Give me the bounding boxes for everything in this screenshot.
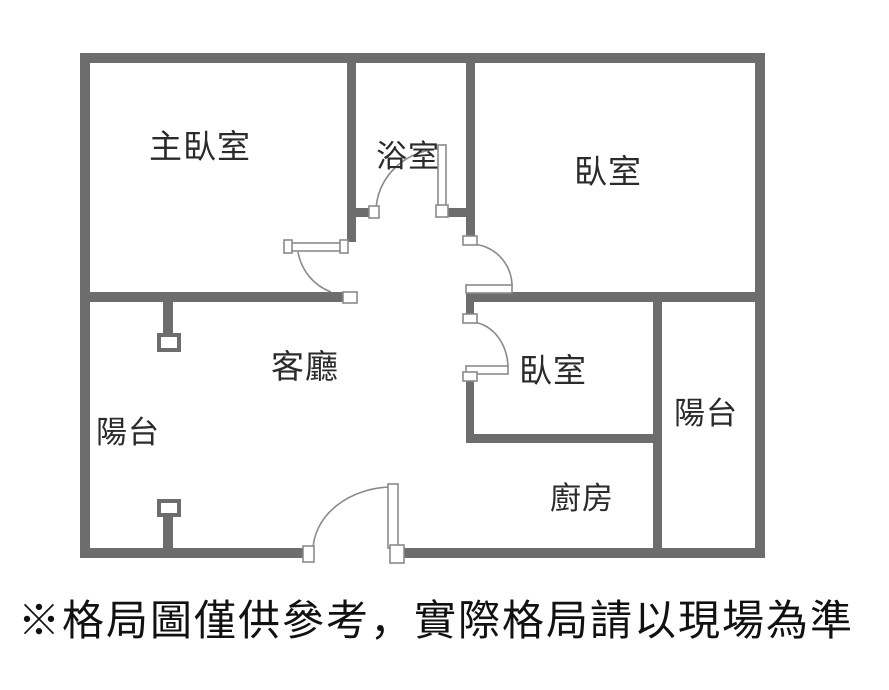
door-jamb [436,205,448,217]
door-jamb [284,240,292,253]
disclaimer-caption: ※格局圖僅供參考，實際格局請以現場為準 [18,598,854,645]
room-label-bedroom-middle: 臥室 [519,353,587,390]
floor-plan-drawing: 主臥室 浴室 臥室 客廳 陽台 臥室 陽台 廚房 ※格局圖僅供參考，實際格局請以… [0,0,889,690]
door-jamb [463,372,477,381]
post-cap-bottom [159,501,179,515]
door-jamb [463,236,477,245]
door-jamb [340,240,348,253]
wall-outer-left [80,53,90,558]
door-leaf [287,243,347,251]
door-jamb [463,314,477,323]
room-labels: 主臥室 浴室 臥室 客廳 陽台 臥室 陽台 廚房 [96,129,738,516]
wall-end-caps [159,335,179,515]
floor-plan-page: 主臥室 浴室 臥室 客廳 陽台 臥室 陽台 廚房 ※格局圖僅供參考，實際格局請以… [0,0,889,690]
walls [80,53,765,558]
room-label-bedroom-top-right: 臥室 [574,154,642,191]
wall-outer-top [80,53,765,63]
post-cap-top [159,335,179,350]
room-label-balcony-right: 陽台 [674,396,738,431]
door-arc [470,322,508,368]
wall-bedroom-mid-bottom [466,434,658,443]
wall-balcony-left-stub-top [163,302,173,334]
door-leaf [388,484,398,548]
wall-outer-bottom-left [80,548,305,558]
wall-balcony-right [653,302,662,548]
wall-outer-right [755,53,765,558]
room-label-kitchen: 廚房 [550,481,614,516]
bedroom-top-door [463,236,512,293]
room-label-master-bedroom: 主臥室 [149,129,251,166]
door-arc [470,244,512,287]
door-jamb [369,206,379,218]
wall-balcony-left-stub-bottom [163,517,173,548]
door-jamb [390,545,404,563]
bedroom-middle-door [463,314,508,381]
entrance-door [303,484,404,563]
wall-outer-bottom-right [402,548,765,558]
wall-bedroom-top-left [466,63,475,238]
room-label-bathroom: 浴室 [376,139,440,174]
door-arc [298,252,331,292]
wall-divider-left [88,292,343,302]
wall-bedroom-mid-left [466,376,474,440]
door-jamb [343,292,357,303]
door-arc [313,487,393,551]
door-jamb [303,546,314,562]
room-label-living-room: 客廳 [271,349,339,386]
room-label-balcony-left: 陽台 [96,415,160,450]
door-leaf [466,285,512,293]
